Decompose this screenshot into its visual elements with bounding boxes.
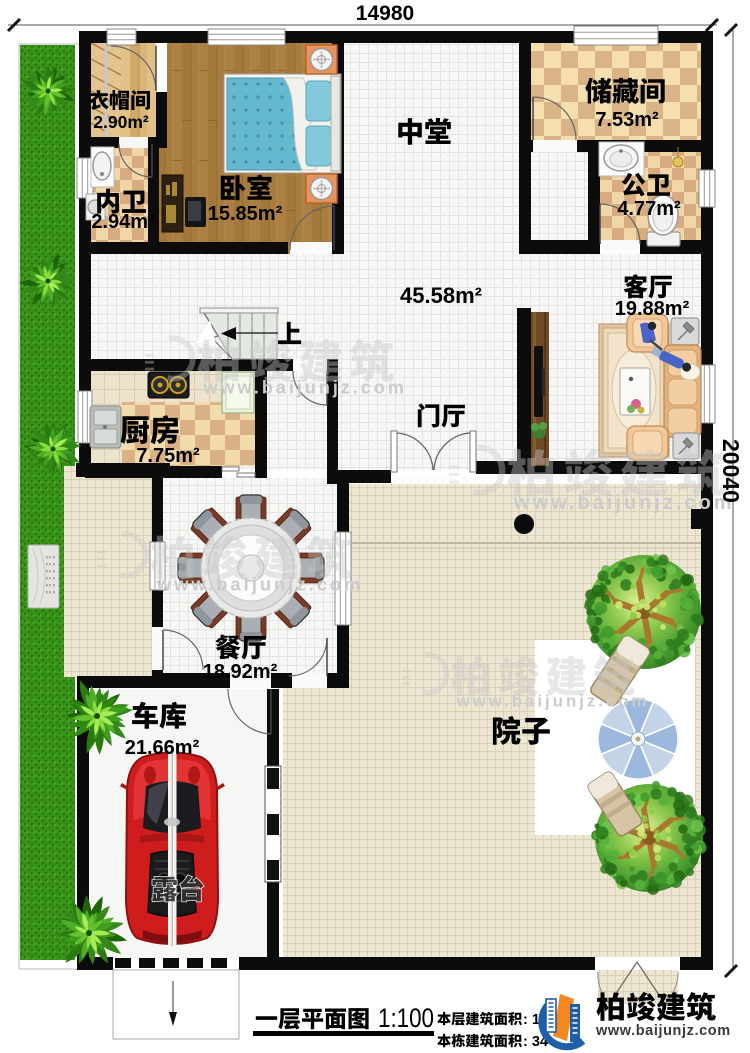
svg-text:14980: 14980 xyxy=(356,2,414,25)
svg-text:18.92m²: 18.92m² xyxy=(203,661,278,683)
svg-text:2.94m²: 2.94m² xyxy=(91,211,155,233)
svg-text:15.85m²: 15.85m² xyxy=(208,203,283,225)
svg-text:www.baijunjz.com: www.baijunjz.com xyxy=(456,691,650,710)
svg-text:45.58m²: 45.58m² xyxy=(400,283,482,308)
svg-text:4.77m²: 4.77m² xyxy=(617,198,681,220)
svg-text:20040: 20040 xyxy=(718,439,744,503)
svg-text:7.53m²: 7.53m² xyxy=(595,109,659,131)
svg-text:www.baijunjz.com: www.baijunjz.com xyxy=(595,1023,731,1039)
svg-text:7.75m²: 7.75m² xyxy=(136,445,200,467)
svg-text:21.66m²: 21.66m² xyxy=(125,737,200,759)
svg-text:2.90m²: 2.90m² xyxy=(93,112,149,132)
svg-text:19.88m²: 19.88m² xyxy=(615,298,690,320)
svg-text:1:100: 1:100 xyxy=(378,1003,434,1033)
svg-text:www.baijunjz.com: www.baijunjz.com xyxy=(513,492,735,514)
svg-text:www.baijunjz.com: www.baijunjz.com xyxy=(203,377,407,397)
svg-text:www.baijunjz.com: www.baijunjz.com xyxy=(156,574,364,595)
